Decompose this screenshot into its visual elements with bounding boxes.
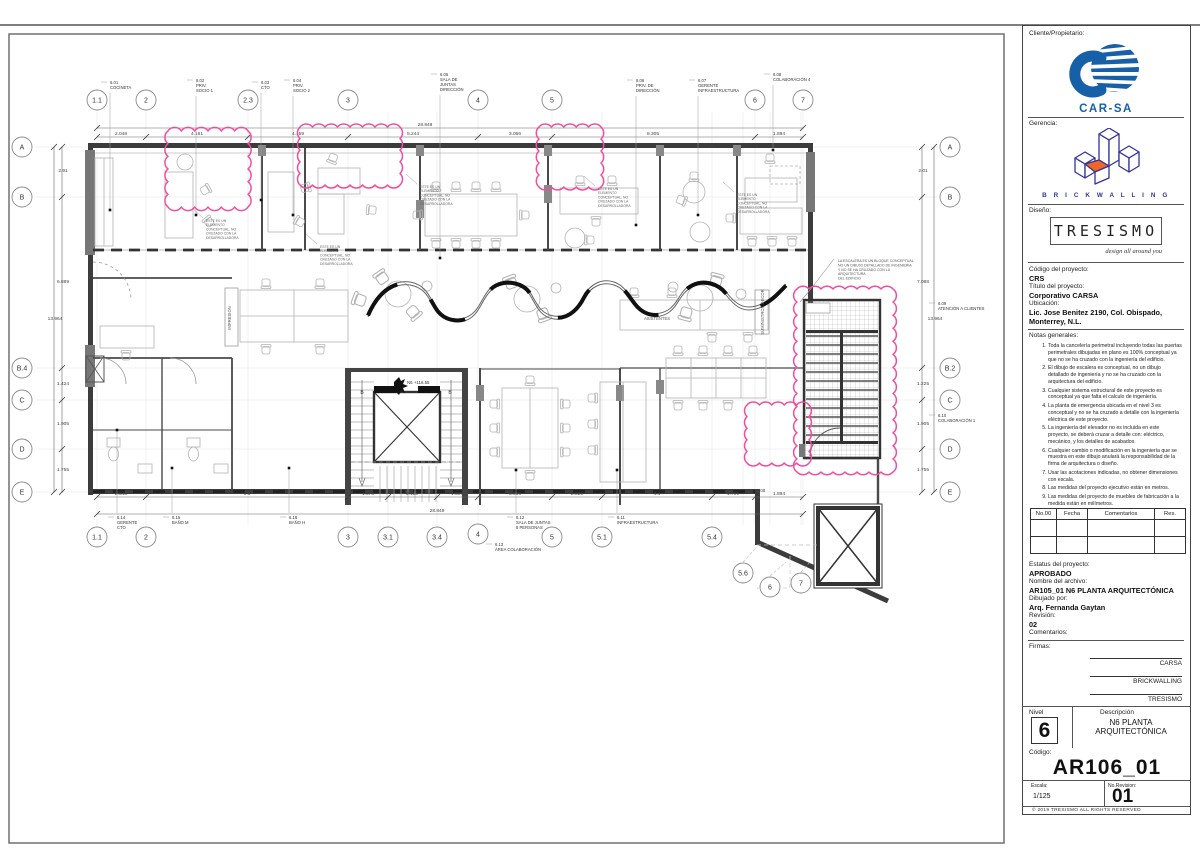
dim-label-overall: 13.964 <box>928 316 943 322</box>
dim-label-overall: 13.964 <box>48 316 63 322</box>
room-name: 8 PERSONAS <box>516 525 543 530</box>
grid-bubble-label: 4 <box>476 97 480 104</box>
area-label: ASISTENTES <box>644 316 670 321</box>
brickwalling-wordmark: B R I C K W A L L I N G <box>1040 192 1172 199</box>
dim-label: 3.08 <box>757 488 766 493</box>
drawing-sheet: 2.0484.1614.1595.2443.0568.3051.8942.048… <box>0 0 1200 857</box>
grid-bubble-leader <box>743 547 757 562</box>
grid-bubble-label: B <box>20 194 25 201</box>
dim-label: 6.889 <box>57 279 69 285</box>
conceptual-note: DESARROLLADORA <box>206 236 239 240</box>
rev-col-res: Res. <box>1155 509 1186 520</box>
bottom-right-shaft <box>757 504 882 588</box>
room-leader-dot <box>697 214 700 217</box>
room-name: SOCIO 1 <box>196 88 214 93</box>
brickwalling-logo <box>1066 128 1146 190</box>
grid-bubble-label: B.2 <box>945 365 956 372</box>
dim-label: 2.048 <box>115 131 127 137</box>
dim-label: 2.115 <box>406 491 418 497</box>
room-leader-dot <box>195 214 198 217</box>
room-name: ATENCIÓN A CLIENTES <box>938 306 985 311</box>
grid-bubble-label: 5 <box>550 97 554 104</box>
grid-bubble-label: 7 <box>799 580 803 587</box>
revision-cloud <box>536 124 603 190</box>
tresismo-tagline: design all around you <box>1062 248 1162 255</box>
room-name: COCINETA <box>110 85 132 90</box>
description-line1: N6 PLANTA <box>1075 718 1187 727</box>
general-note: La planta de emergencia ubicada en el ni… <box>1048 403 1182 423</box>
divider <box>1028 262 1184 263</box>
divider <box>1022 806 1191 807</box>
grid-bubble-label: A <box>948 144 953 151</box>
notes-label: Notas generales: <box>1029 332 1078 339</box>
grid-bubble-label: 6 <box>753 97 757 104</box>
room-name: DIRECCIÓN <box>636 88 660 93</box>
grid-bubble-label: 2 <box>144 97 148 104</box>
revision-cloud <box>165 127 251 210</box>
location-line1: Lic. Jose Benitez 2190, Col. Obispado, <box>1029 308 1162 317</box>
room-leader-dot <box>116 429 119 432</box>
grid-bubble-label: C <box>947 397 952 404</box>
grid-bubble-label: E <box>948 489 953 496</box>
room-name: INFRAESTRUCTURA <box>617 520 658 525</box>
room-leader-dot <box>515 469 518 472</box>
room-name: BAÑO H <box>289 520 305 525</box>
signature-tresismo: TRESISMO <box>1090 696 1182 703</box>
grid-bubble-label: 1.1 <box>92 97 102 104</box>
project-code-label: Código del proyecto: <box>1029 266 1089 273</box>
grid-bubble-label: 2.3 <box>243 97 253 104</box>
scale-value: 1/125 <box>1033 793 1051 800</box>
dim-label: 5.244 <box>407 131 419 137</box>
dim-label-overall: 28.849 <box>418 122 433 128</box>
status-label: Estatus del proyecto: <box>1029 561 1090 568</box>
divider <box>1028 329 1184 330</box>
dim-label: 1.755 <box>57 467 69 473</box>
drawn-label: Dibujado por: <box>1029 595 1068 602</box>
grid-bubble-label: 5.4 <box>707 534 717 541</box>
grid-bubble-label: 3 <box>346 97 350 104</box>
dim-label: 1.424 <box>57 381 69 387</box>
dim-label: 8.305 <box>647 131 659 137</box>
stair-note: NO UN DIBUJO DETALLADO DE INGENIERIA <box>838 263 912 267</box>
revision-table: No.00 Fecha Comentarios Res. <box>1030 508 1186 554</box>
grid-bubble-label: 3 <box>346 534 350 541</box>
room-name: COLABORACIÓN 4 <box>773 77 811 82</box>
design-label: Diseño: <box>1029 207 1051 214</box>
grid-bubble-label: 5 <box>550 534 554 541</box>
description-line2: ARQUITECTÓNICA <box>1075 727 1187 736</box>
general-note: Las medidas del proyecto ejecutivo están… <box>1048 485 1182 492</box>
revision-cloud <box>298 124 403 188</box>
grid-bubble-label: B.4 <box>17 365 28 372</box>
note-leader <box>584 176 595 186</box>
signature-brickwalling: BRICKWALLING <box>1090 678 1182 685</box>
rev-col-no: No.00 <box>1031 509 1057 520</box>
plan-misc-labels: N6 +116.55IMPRESIÓNASISTENTESSUMINISTROS… <box>227 289 765 396</box>
level-value: 6 <box>1031 717 1058 744</box>
room-leader-dot <box>109 209 112 212</box>
annotations: ESTE ES UNELEMENTOCONCEPTUAL, NOCRUZADO … <box>192 174 914 302</box>
general-note: Cualquier cambio o modificación en la in… <box>1048 448 1182 468</box>
dim-label: 3.056 <box>509 491 521 497</box>
project-title-label: Título del proyecto: <box>1029 283 1084 290</box>
signature-line <box>1090 676 1182 677</box>
grid-bubble-label: 5.1 <box>597 534 607 541</box>
grid-bubble-label: 6 <box>768 584 772 591</box>
level-label: Nivel <box>1029 709 1043 716</box>
note-leader <box>723 182 734 192</box>
level-marker-text: N6 +116.55 <box>407 380 430 385</box>
dim-label: 7.088 <box>917 279 929 285</box>
description-label: Descripción <box>1100 709 1134 716</box>
room-name: ÁREA COLABORACIÓN <box>495 547 541 552</box>
divider <box>1028 640 1184 641</box>
note-leader <box>800 259 834 302</box>
divider <box>1022 706 1191 707</box>
grid-bubble-label: 1.1 <box>92 534 102 541</box>
grid-bubble-label: 3.1 <box>383 534 393 541</box>
room-leader-dot <box>288 467 291 470</box>
dim-label: 1.905 <box>57 421 69 427</box>
drawn-by: Arq. Fernanda Gaytan <box>1029 603 1105 612</box>
room-name: CTO <box>261 85 271 90</box>
dim-label: 1.894 <box>773 131 785 137</box>
general-note: El dibujo de escalera es conceptual, no … <box>1048 365 1182 385</box>
note-leader <box>306 234 317 244</box>
grid-bubble-label: E <box>20 489 25 496</box>
room-leader-dot <box>171 467 174 470</box>
signature-line <box>1090 694 1182 695</box>
conceptual-note: DESARROLLADORA <box>598 204 631 208</box>
divider <box>1028 204 1184 205</box>
grid-bubble-label: D <box>19 446 24 453</box>
rev-row-empty <box>1031 537 1186 554</box>
room-name: CTO <box>117 525 127 530</box>
signature-line <box>1090 658 1182 659</box>
rev-row-empty <box>1031 520 1186 537</box>
client-label: Cliente/Propietario: <box>1029 30 1084 37</box>
grid-bubble-leader <box>770 562 786 576</box>
general-note: La ingeniería del elevador no es incluid… <box>1048 425 1182 445</box>
area-label: IMPRESIÓN <box>227 306 232 330</box>
grid-bubble-label: 5.6 <box>738 570 748 577</box>
dim-label: 1.225 <box>917 381 929 387</box>
sheet-code: AR106_01 <box>1029 756 1185 780</box>
note-leader <box>406 174 417 184</box>
rev-col-comentarios: Comentarios <box>1088 509 1155 520</box>
grid-bubble-label: A <box>20 144 25 151</box>
room-name: INFRAESTRUCTURA <box>698 88 739 93</box>
room-name: DIRECCIÓN <box>440 87 464 92</box>
general-note: Las medidas del proyecto de muebles de f… <box>1048 494 1182 508</box>
grid-bubble-label: D <box>947 446 952 453</box>
conceptual-note: DESARROLLADORA <box>320 262 353 266</box>
dim-label: 4.161 <box>191 131 203 137</box>
dim-label: 2.026 <box>571 491 583 497</box>
grid-bubble-label: B <box>948 194 953 201</box>
dim-label: 1.755 <box>917 467 929 473</box>
location-label: Ubicación: <box>1029 300 1059 307</box>
general-notes-list: Toda la cancelería perimetral incluyendo… <box>1032 343 1184 510</box>
dim-label: 2.91 <box>58 168 68 174</box>
dim-label: 1.609 <box>451 491 463 497</box>
file-label: Nombre del archivo: <box>1029 578 1087 585</box>
divider <box>1028 117 1184 118</box>
divider <box>1104 780 1105 806</box>
conceptual-note: DESARROLLADORA <box>737 210 770 214</box>
stair-note: Y NO SE HA CRUZADO CON LA <box>838 268 891 272</box>
carsa-logo <box>1063 42 1149 104</box>
file-name: AR105_01 N6 PLANTA ARQUITECTÓNICA <box>1029 586 1174 595</box>
code-label: Código: <box>1029 749 1051 756</box>
signature-carsa: CARSA <box>1090 660 1182 667</box>
dim-label-overall: 28.849 <box>430 508 445 514</box>
dim-label: 1.799 <box>727 491 739 497</box>
stair-note: DEL EDIFICIO <box>838 277 861 281</box>
room-name: SOCIO 2 <box>293 88 311 93</box>
dim-label: 8.3 <box>244 491 251 497</box>
dim-label: 4.4 <box>654 491 661 497</box>
room-leader-dot <box>772 149 775 152</box>
revno-value: 01 <box>1112 786 1133 808</box>
dim-label: 1.905 <box>917 421 929 427</box>
grid-bubble-label: 4 <box>476 531 480 538</box>
serpentine-wall <box>368 281 786 322</box>
revision-value: 02 <box>1029 620 1037 629</box>
stair-elevator-core <box>345 368 468 505</box>
section-marker: B <box>448 390 452 396</box>
room-name: BAÑO M <box>172 520 189 525</box>
dim-label: 2.01 <box>918 168 928 174</box>
stair-note: ARQUITECTURA <box>838 272 866 276</box>
divider <box>1022 780 1191 781</box>
room-leader-dot <box>635 224 638 227</box>
area-label: SUMINISTROS DECOR <box>760 289 765 334</box>
description-value: N6 PLANTA ARQUITECTÓNICA <box>1075 718 1187 736</box>
room-leader-dot <box>260 199 263 202</box>
room-leader-dot <box>439 257 442 260</box>
dim-label: 1.570 <box>362 491 374 497</box>
grid-bubble-label: 7 <box>801 97 805 104</box>
grid-bubble-label: 3.4 <box>432 534 442 541</box>
stair-note: LA ESCALERA ES UN BLOQUE CONCEPTUAL <box>838 259 914 263</box>
project-code: CRS <box>1029 274 1044 283</box>
room-leader-dot <box>292 214 295 217</box>
general-note: Cualquier sistema estructural de este pr… <box>1048 388 1182 402</box>
general-note: Toda la cancelería perimetral incluyendo… <box>1048 343 1182 363</box>
management-label: Gerencia: <box>1029 120 1057 127</box>
status-value: APROBADO <box>1029 569 1072 578</box>
project-title: Corporativo CARSA <box>1029 291 1098 300</box>
section-marker: B <box>360 390 364 396</box>
tresismo-logo: TRESISMO <box>1050 217 1162 245</box>
revision-clouds <box>165 124 896 475</box>
general-note: Usar las acotaciones indicadas, no obten… <box>1048 470 1182 484</box>
scale-label: Escala: <box>1031 783 1047 789</box>
floor-plan: 2.0484.1614.1595.2443.0568.3051.8942.048… <box>0 0 1200 857</box>
signatures-label: Firmas: <box>1029 643 1051 650</box>
location-line2: Monterrey, N.L. <box>1029 317 1082 326</box>
carsa-wordmark: CAR-SA <box>1063 103 1149 115</box>
rev-col-fecha: Fecha <box>1057 509 1088 520</box>
dim-label: 3.056 <box>509 131 521 137</box>
grid-bubble-label: C <box>19 397 24 404</box>
copyright: © 2019 TRESISMO ALL RIGHTS RESERVED <box>1032 808 1141 813</box>
comments-label: Comentarios: <box>1029 629 1068 636</box>
room-leader-dot <box>616 469 619 472</box>
grid-bubble-label: 2 <box>144 534 148 541</box>
revision-label: Revisión: <box>1029 612 1056 619</box>
room-name: COLABORACIÓN 1 <box>938 418 976 423</box>
conceptual-note: DESARROLLADORA <box>420 202 453 206</box>
dim-label: 1.894 <box>773 491 785 497</box>
divider <box>1072 706 1073 748</box>
